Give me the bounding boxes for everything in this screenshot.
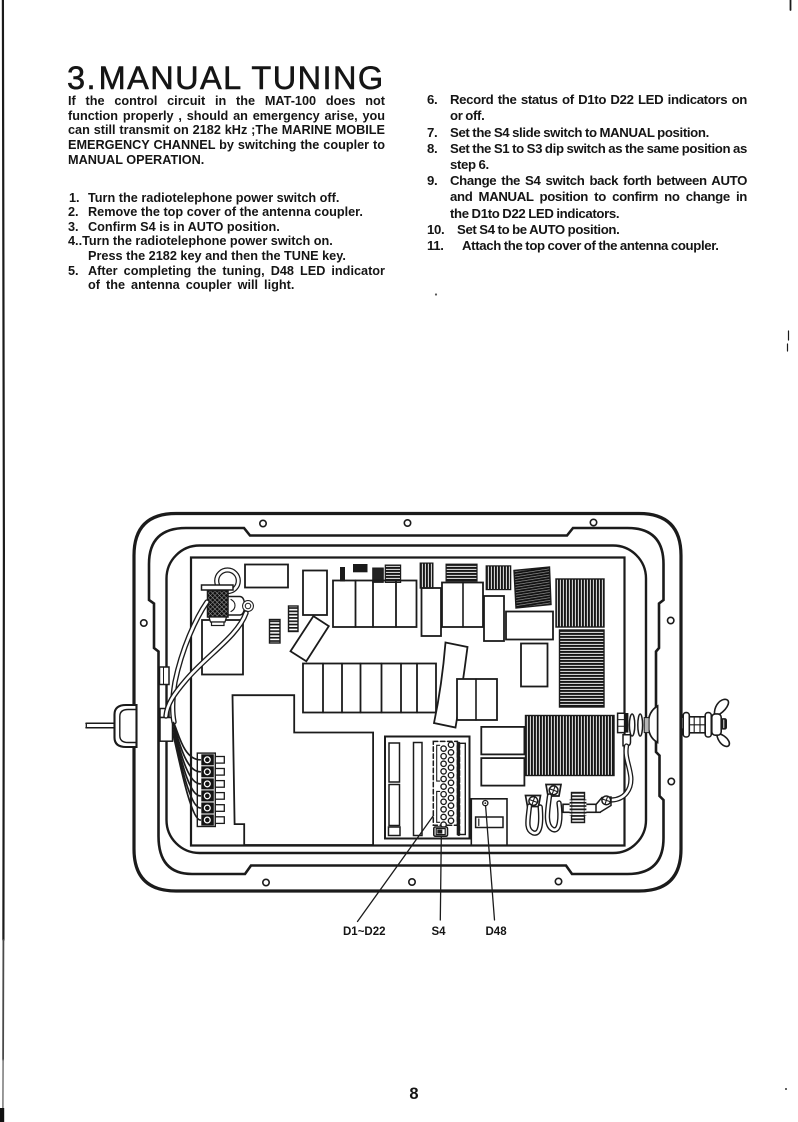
svg-text:S4: S4 [432,926,447,938]
svg-text:D48: D48 [486,926,508,938]
svg-text:D1~D22: D1~D22 [343,926,386,938]
